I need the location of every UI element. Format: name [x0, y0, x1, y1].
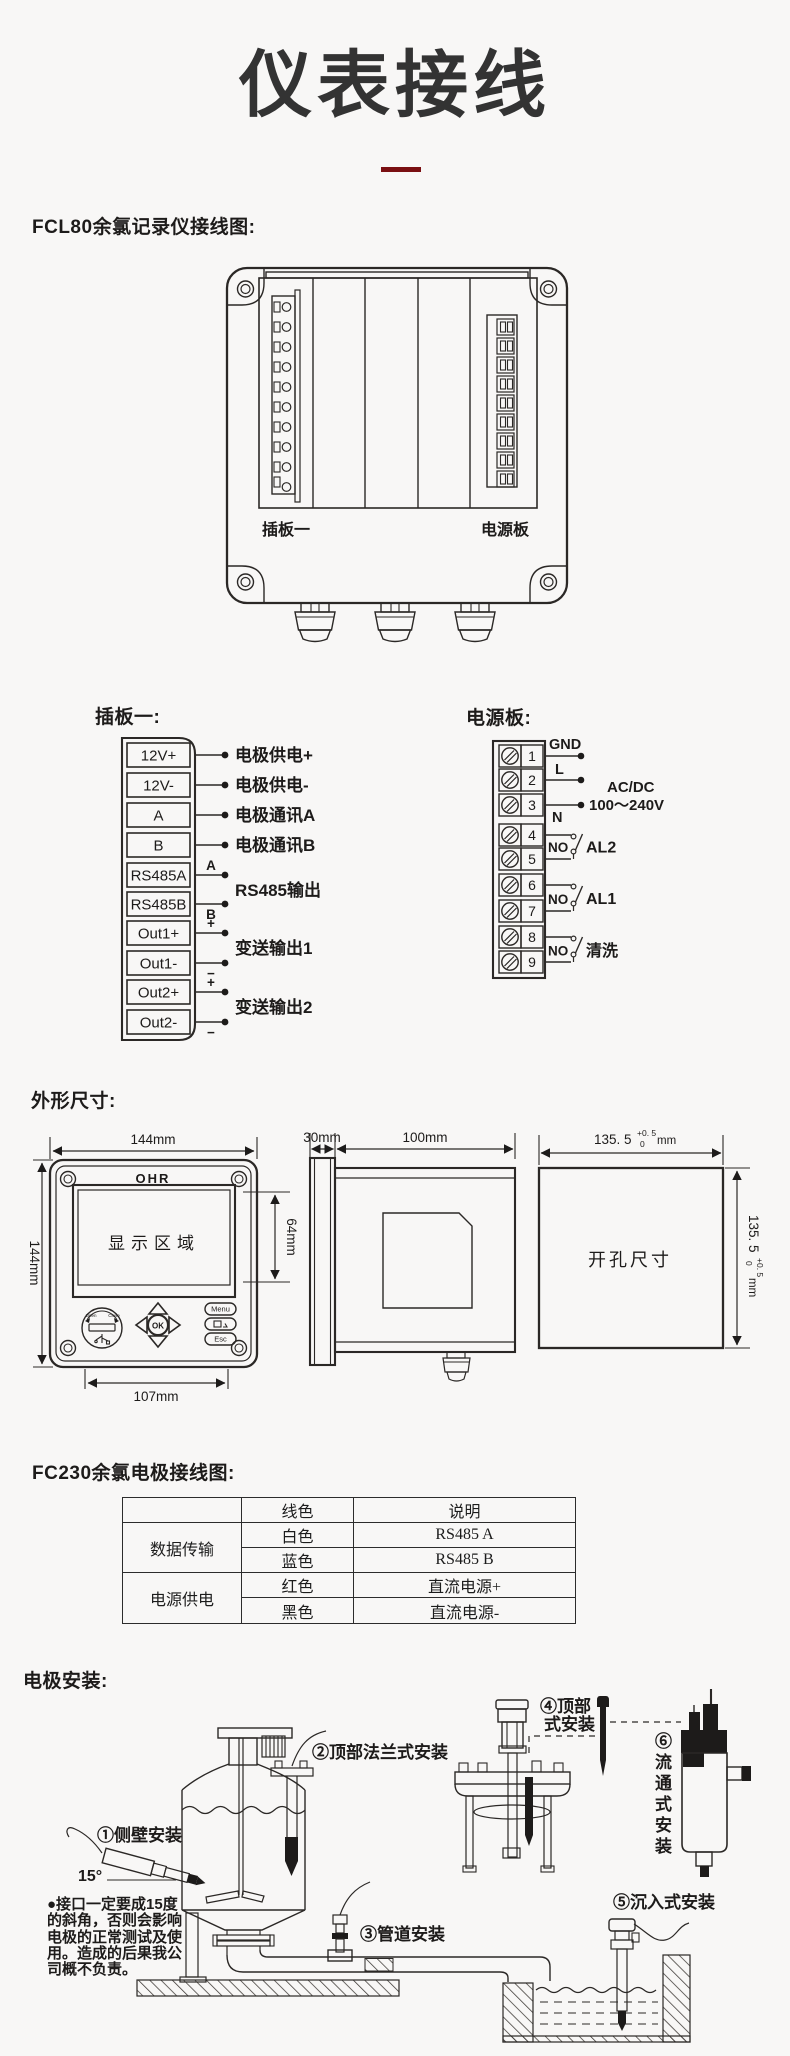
terminal-b: B: [153, 838, 163, 855]
ground-hatch: [137, 1980, 399, 1996]
slot1-terminal-strip: [272, 290, 300, 502]
pipe-electrode: [328, 1882, 370, 1961]
page: 仪表接线 FCL80余氯记录仪接线图:: [0, 0, 790, 2056]
side-view: 30mm 100mm: [303, 1130, 515, 1381]
flow-cell: [681, 1689, 751, 1877]
usb-open-label: Open: [85, 1313, 97, 1318]
title-divider: [381, 167, 421, 172]
relay-label-clean: 清洗: [586, 941, 618, 960]
powerboard-diagram: 1 2 3 4 5 6 7 8 9 GND L N AC/DC 100～240V…: [445, 690, 745, 1000]
wire-desc: RS485 A: [354, 1523, 576, 1548]
svg-text:mm: mm: [657, 1135, 676, 1147]
usb-port-icon: Open Close: [82, 1308, 122, 1348]
table-row: 数据传输 白色 RS485 A: [123, 1523, 576, 1548]
immersion-basin: [503, 1919, 690, 2042]
page-title: 仪表接线: [0, 26, 790, 132]
menu-label: Menu: [211, 1305, 230, 1314]
plugboard-terminals: 12V+ 12V- A B RS485A RS485B Out1+ Out1- …: [127, 743, 190, 1034]
terminal-out1m: Out1-: [140, 956, 178, 973]
dim-display-height-label: 64mm: [284, 1218, 299, 1256]
powerboard-wiring: GND L N AC/DC 100～240V NO AL2 NO AL1 NO …: [545, 737, 664, 962]
down-arrow-icon: [149, 1336, 167, 1347]
terminal-1: 1: [528, 748, 536, 764]
label-top-mount-1: ④顶部: [540, 1696, 591, 1716]
terminal-3: 3: [528, 797, 536, 813]
wire-color: 蓝色: [242, 1548, 354, 1573]
page-icon: [214, 1321, 227, 1327]
dim-height-label: 144mm: [27, 1240, 42, 1285]
terminal-6: 6: [528, 877, 536, 893]
cutout-height-label: 135. 5 +0. 5 0 mm: [744, 1215, 765, 1297]
powerboard-label: 电源板: [481, 520, 530, 539]
note-line: 司概不负责。: [47, 1962, 189, 1978]
svg-text:mm: mm: [746, 1278, 758, 1297]
wire-color: 黑色: [242, 1598, 354, 1624]
wire-tag-minus2: −: [207, 1025, 215, 1040]
svg-text:135. 5: 135. 5: [746, 1215, 761, 1253]
group-power-supply: 电源供电: [123, 1573, 242, 1624]
note-line: 电极的正常测试及使: [47, 1930, 189, 1946]
wire-desc: 直流电源-: [354, 1598, 576, 1624]
function-keys: Menu Esc: [205, 1303, 236, 1345]
dim-width-label: 144mm: [130, 1132, 175, 1147]
svg-text:+0. 5: +0. 5: [637, 1128, 656, 1138]
svg-text:+0. 5: +0. 5: [755, 1258, 765, 1277]
terminal-out2p: Out2+: [138, 985, 180, 1002]
relay-label-al1: AL1: [586, 891, 616, 908]
terminal-rs485a: RS485A: [131, 868, 187, 885]
nav-keys: OK: [136, 1303, 180, 1347]
terminal-rs485b: RS485B: [131, 897, 187, 914]
cable-gland-icon: [295, 603, 495, 642]
display-area-label: 显示区域: [108, 1234, 200, 1253]
terminal-8: 8: [528, 929, 536, 945]
install-note: ●接口一定要成15度 的斜角，否则会影响 电极的正常测试及使 用。造成的后果我公…: [47, 1897, 189, 1978]
note-line: 的斜角，否则会影响: [47, 1913, 189, 1929]
esc-label: Esc: [214, 1335, 227, 1344]
label-top-flange: ②顶部法兰式安装: [312, 1742, 448, 1762]
cutout-label: 开孔尺寸: [588, 1250, 672, 1270]
supply-label-2: 100～240V: [589, 797, 664, 814]
col-header-color: 线色: [242, 1498, 354, 1523]
terminal-12vm: 12V-: [143, 778, 174, 795]
panel-cutout: 开孔尺寸 135. 5 +0. 5 0 mm 135. 5 +0. 5 0 mm: [539, 1128, 765, 1348]
note-line: 用。造成的后果我公: [47, 1946, 189, 1962]
no-label-1: NO: [548, 840, 568, 855]
wire-tag-plus2: +: [207, 975, 215, 990]
wire-color: 白色: [242, 1523, 354, 1548]
table-corner-cell: [123, 1498, 242, 1523]
dim-depth-label: 100mm: [402, 1130, 447, 1145]
slot1-label: 插板一: [262, 520, 310, 539]
terminal-out1p: Out1+: [138, 926, 180, 943]
brand-logo: OHR: [136, 1171, 171, 1186]
wire-desc: RS485 B: [354, 1548, 576, 1573]
fcl80-heading: FCL80余氯记录仪接线图:: [32, 212, 255, 239]
fc230-wiring-table: 线色 说明 数据传输 白色 RS485 A 蓝色 RS485 B 电源供电 红色…: [122, 1497, 576, 1624]
right-arrow-icon: [169, 1317, 180, 1333]
plugboard-diagram: 12V+ 12V- A B RS485A RS485B Out1+ Out1- …: [85, 690, 365, 1055]
wire-label-comm-a: 电极通讯A: [235, 805, 315, 825]
label-side-wall: ①侧壁安装: [97, 1825, 182, 1845]
powerboard-terminals: 1 2 3 4 5 6 7 8 9: [499, 745, 543, 973]
wire-label-out2: 变送输出2: [235, 997, 312, 1017]
left-arrow-icon: [136, 1317, 147, 1333]
wire-tag-plus1: +: [207, 916, 215, 931]
plugboard-wires: A B + − + − 电极供电+ 电极供电- 电极通讯A 电极通讯B RS48…: [195, 745, 321, 1040]
usb-close-label: Close: [108, 1313, 120, 1318]
live-label: L: [555, 762, 564, 778]
up-arrow-icon: [149, 1303, 167, 1314]
dimensions-drawing: OHR 显示区域 Open Close OK: [0, 1085, 790, 1407]
cutout-width-label: 135. 5 +0. 5 0 mm: [594, 1128, 676, 1149]
neutral-label: N: [552, 810, 562, 826]
label-pipe: ③管道安装: [360, 1924, 445, 1944]
wire-tag-a: A: [206, 858, 216, 873]
note-line: ●接口一定要成15度: [47, 1897, 189, 1913]
terminal-9: 9: [528, 954, 536, 970]
label-top-mount-2: 式安装: [544, 1714, 595, 1734]
power-terminal-strip: [487, 315, 517, 487]
svg-text:0: 0: [744, 1261, 754, 1266]
bare-electrode: [597, 1696, 609, 1776]
svg-text:0: 0: [640, 1139, 645, 1149]
terminal-12vp: 12V+: [141, 748, 177, 765]
dim-panel-label: 30mm: [303, 1130, 341, 1145]
terminal-out2m: Out2-: [140, 1015, 178, 1032]
fcl80-device-diagram: 插板一 电源板: [180, 250, 640, 662]
wire-label-supply-minus: 电极供电-: [235, 775, 309, 795]
terminal-7: 7: [528, 903, 536, 919]
fc230-heading: FC230余氯电极接线图:: [32, 1458, 235, 1485]
powerboard-block: [493, 741, 545, 978]
no-label-3: NO: [548, 944, 568, 959]
angle-label: 15°: [78, 1868, 102, 1885]
wire-color: 红色: [242, 1573, 354, 1598]
wire-label-supply-plus: 电极供电+: [235, 745, 313, 765]
ok-label: OK: [152, 1322, 164, 1331]
relay-label-al2: AL2: [586, 840, 616, 857]
side-gland-icon: [443, 1352, 470, 1381]
gnd-label: GND: [549, 737, 581, 753]
dim-bottom-label: 107mm: [133, 1389, 178, 1404]
svg-text:135. 5: 135. 5: [594, 1132, 632, 1147]
label-immersion: ⑤沉入式安装: [613, 1892, 715, 1912]
wire-label-rs485-out: RS485输出: [235, 880, 321, 900]
wire-label-comm-b: 电极通讯B: [235, 835, 315, 855]
supply-label-1: AC/DC: [607, 779, 655, 796]
device-enclosure: [227, 268, 567, 603]
wire-label-out1: 变送输出1: [235, 938, 312, 958]
col-header-desc: 说明: [354, 1498, 576, 1523]
wire-desc: 直流电源+: [354, 1573, 576, 1598]
terminal-5: 5: [528, 851, 536, 867]
terminal-2: 2: [528, 772, 536, 788]
group-data-transfer: 数据传输: [123, 1523, 242, 1573]
terminal-a: A: [153, 808, 163, 825]
table-row: 电源供电 红色 直流电源+: [123, 1573, 576, 1598]
front-view: OHR 显示区域 Open Close OK: [50, 1160, 257, 1367]
terminal-4: 4: [528, 827, 536, 843]
no-label-2: NO: [548, 892, 568, 907]
label-flow-through: ⑥流通式安装: [649, 1732, 674, 1872]
